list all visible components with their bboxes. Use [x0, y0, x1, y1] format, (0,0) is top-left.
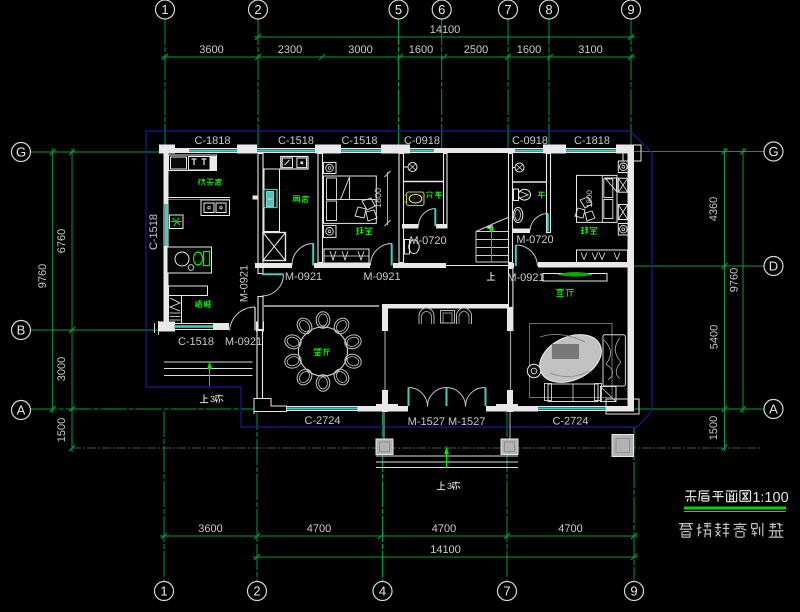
- svg-text:4700: 4700: [432, 523, 456, 535]
- svg-text:C-2724: C-2724: [304, 415, 340, 427]
- svg-text:6: 6: [438, 2, 445, 17]
- svg-text:M-0921: M-0921: [239, 265, 251, 302]
- svg-text:8: 8: [545, 2, 552, 17]
- svg-text:4700: 4700: [558, 523, 582, 535]
- svg-text:1500: 1500: [708, 416, 720, 440]
- svg-text:2500: 2500: [464, 44, 488, 56]
- svg-text:C-1518: C-1518: [178, 336, 214, 348]
- svg-text:M-0921: M-0921: [507, 272, 544, 284]
- svg-text:14100: 14100: [430, 24, 461, 36]
- svg-text:M-1527 M-1527: M-1527 M-1527: [408, 416, 486, 428]
- svg-text:3100: 3100: [578, 44, 602, 56]
- svg-text:1: 1: [161, 2, 168, 17]
- svg-text:M-0921: M-0921: [363, 271, 400, 283]
- svg-text:4: 4: [379, 584, 386, 599]
- svg-text:9: 9: [630, 584, 637, 599]
- svg-text:M-0720: M-0720: [516, 234, 553, 246]
- svg-text:1:100: 1:100: [752, 490, 788, 506]
- svg-text:14100: 14100: [430, 544, 461, 556]
- svg-text:M-0921: M-0921: [225, 336, 262, 348]
- svg-text:C-1518: C-1518: [148, 214, 160, 250]
- svg-text:2: 2: [254, 2, 261, 17]
- svg-text:5400: 5400: [709, 325, 721, 349]
- svg-text:3000: 3000: [56, 357, 68, 381]
- svg-text:9760: 9760: [37, 264, 49, 288]
- svg-text:C-1818: C-1818: [574, 135, 610, 147]
- svg-text:C-1518: C-1518: [278, 135, 314, 147]
- svg-text:3600: 3600: [199, 44, 223, 56]
- svg-text:C-1818: C-1818: [194, 135, 230, 147]
- svg-text:7: 7: [504, 2, 511, 17]
- svg-text:G: G: [16, 145, 26, 160]
- svg-text:M-0720: M-0720: [409, 235, 446, 247]
- svg-text:D: D: [769, 259, 778, 274]
- svg-text:1500: 1500: [56, 418, 68, 442]
- svg-text:3600: 3600: [198, 523, 222, 535]
- svg-text:G: G: [768, 144, 778, 159]
- svg-text:C-0918: C-0918: [512, 135, 548, 147]
- svg-text:7: 7: [503, 584, 510, 599]
- svg-text:6760: 6760: [56, 229, 68, 253]
- svg-text:9: 9: [627, 2, 634, 17]
- svg-text:C-2724: C-2724: [552, 416, 588, 428]
- svg-text:3000: 3000: [348, 44, 372, 56]
- svg-text:A: A: [769, 402, 778, 417]
- svg-text:9760: 9760: [729, 268, 741, 292]
- svg-text:1600: 1600: [517, 44, 541, 56]
- svg-text:4360: 4360: [708, 197, 720, 221]
- svg-text:M-0921: M-0921: [285, 271, 322, 283]
- svg-text:1: 1: [160, 584, 167, 599]
- svg-text:2: 2: [253, 584, 260, 599]
- svg-text:B: B: [17, 323, 26, 338]
- svg-text:3: 3: [447, 481, 452, 491]
- svg-text:A: A: [17, 403, 26, 418]
- svg-text:C-0918: C-0918: [404, 135, 440, 147]
- svg-text:3: 3: [210, 394, 215, 404]
- svg-text:1800: 1800: [373, 188, 383, 208]
- svg-text:C-1518: C-1518: [341, 135, 377, 147]
- svg-text:1600: 1600: [409, 44, 433, 56]
- svg-text:4700: 4700: [307, 523, 331, 535]
- svg-text:2300: 2300: [278, 44, 302, 56]
- svg-text:5: 5: [395, 2, 402, 17]
- svg-text:1800: 1800: [585, 190, 594, 208]
